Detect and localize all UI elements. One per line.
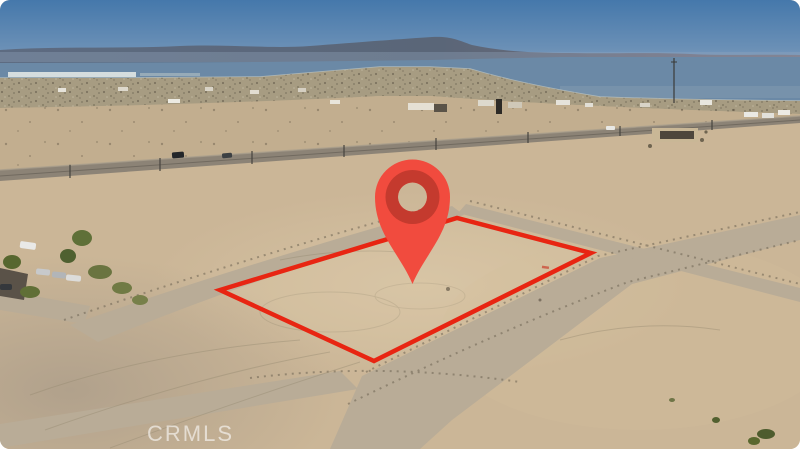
dark-roof-building bbox=[434, 104, 447, 112]
water-tank-tower bbox=[496, 99, 502, 114]
water-glint bbox=[8, 72, 136, 77]
aerial-photo: CRMLS bbox=[0, 0, 800, 449]
aerial-photo-canvas bbox=[0, 0, 800, 449]
listing-photo-frame: CRMLS bbox=[0, 0, 800, 449]
water-glint-small bbox=[140, 73, 200, 76]
